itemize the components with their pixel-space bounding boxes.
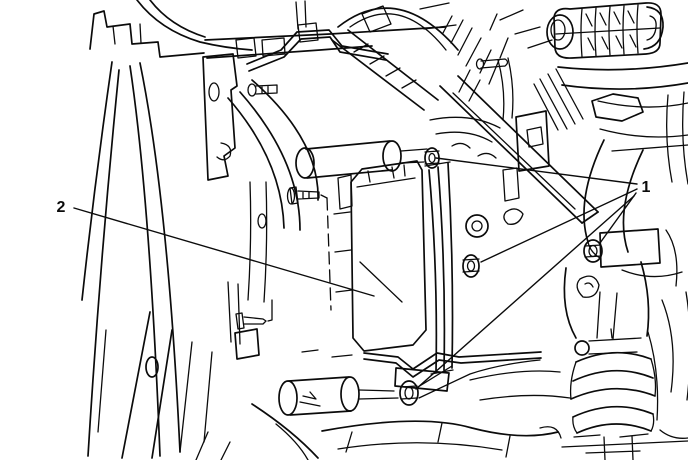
insulator-grommet-right — [584, 240, 602, 262]
mounting-bolt-icon — [288, 187, 320, 204]
engine-mount-and-boot — [562, 92, 688, 460]
intake-duct — [534, 3, 688, 151]
module-outline — [351, 161, 426, 351]
bolt-icon — [248, 84, 277, 96]
control-module-assembly — [235, 141, 541, 415]
stud-icon — [477, 59, 508, 69]
lower-bolt-icon — [236, 300, 272, 329]
cv-boot-bellows — [571, 332, 658, 433]
bracket-ring — [466, 215, 488, 237]
callout-leader-lines — [74, 158, 637, 389]
callout-1-leader-line-right — [600, 193, 636, 243]
callout-1-leader-line-bottom — [416, 196, 634, 389]
callout-label-1: 1 — [642, 179, 651, 196]
insulator-grommet-middle — [463, 255, 479, 277]
callout-label-2: 2 — [57, 199, 66, 216]
insulator-grommet-bottom — [400, 381, 418, 405]
service-manual-illustration: 1 2 — [0, 0, 688, 460]
engine-compartment-line-drawing: 1 2 — [0, 0, 688, 460]
boot-clamp-bolt-icon — [575, 329, 641, 355]
